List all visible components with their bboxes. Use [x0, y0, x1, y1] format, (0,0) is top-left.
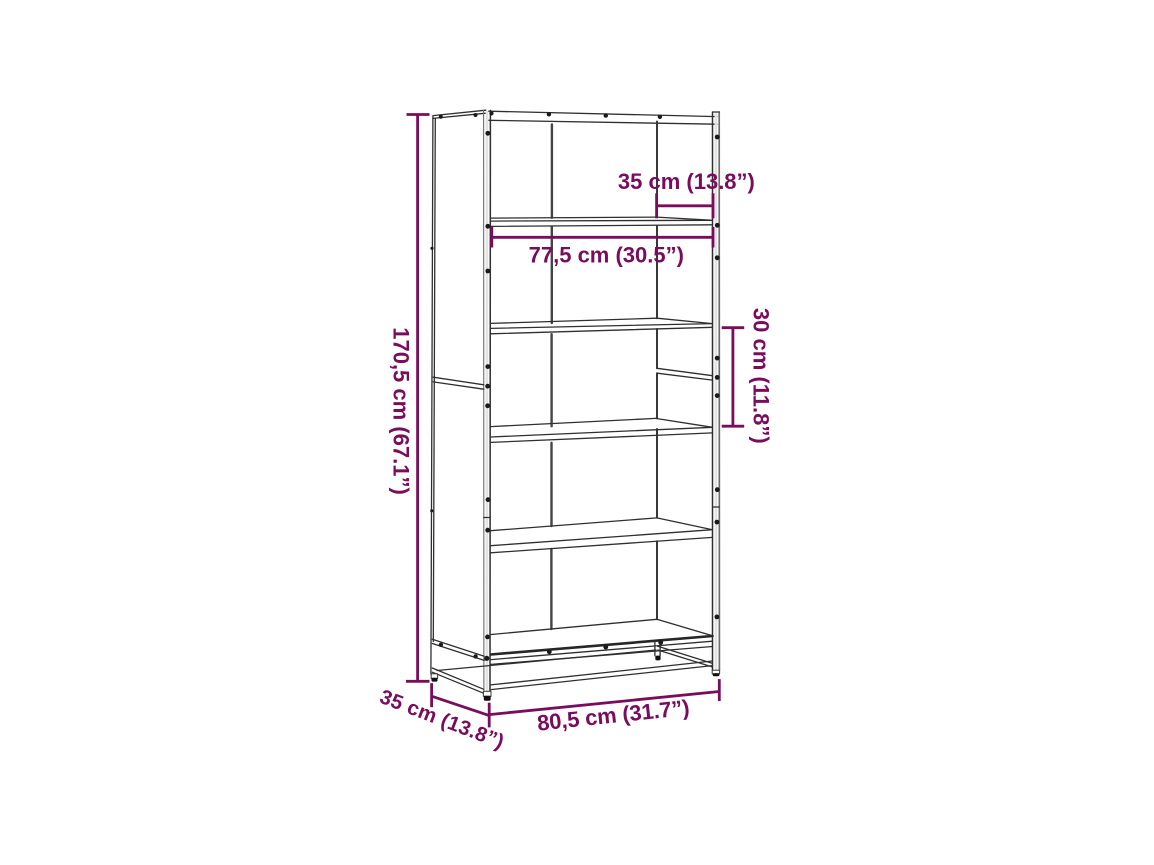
svg-text:30 cm (11.8”): 30 cm (11.8”) — [748, 308, 773, 444]
svg-text:170,5 cm (67.1”): 170,5 cm (67.1”) — [388, 327, 413, 495]
svg-text:35 cm (13.8”): 35 cm (13.8”) — [618, 169, 755, 194]
svg-text:77,5 cm (30.5”): 77,5 cm (30.5”) — [529, 243, 684, 268]
